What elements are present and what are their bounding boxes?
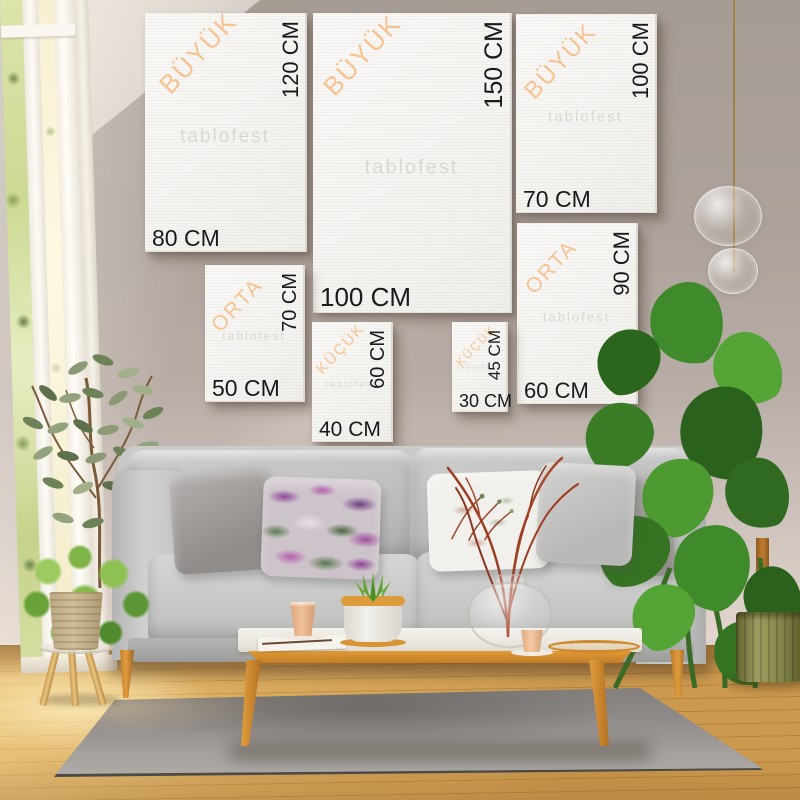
- watermark: tablofest: [222, 329, 285, 343]
- stool-leg: [68, 650, 79, 706]
- height-label: 45 CM: [485, 330, 505, 380]
- stool-leg: [84, 650, 106, 706]
- size-category-label: KÜÇÜK: [313, 320, 368, 377]
- height-label: 150 CM: [480, 21, 509, 109]
- watermark: tablofest: [548, 108, 623, 125]
- succulent-pot: [344, 602, 402, 642]
- coffee-table-apron: [248, 651, 632, 663]
- height-label: 60 CM: [367, 330, 390, 389]
- width-label: 80 CM: [152, 225, 220, 252]
- pillow-purple-leaf-pattern: [260, 476, 381, 580]
- size-category-label: BÜYÜK: [153, 6, 244, 100]
- canvas-30x45: KÜÇÜK tablofest 45 CM 30 CM: [452, 322, 508, 412]
- watermark: tablofest: [365, 157, 459, 180]
- canvas-70x100: BÜYÜK tablofest 100 CM 70 CM: [516, 14, 657, 213]
- size-category-label: BÜYÜK: [317, 8, 408, 102]
- width-label: 100 CM: [320, 282, 411, 313]
- height-label: 120 CM: [278, 21, 304, 98]
- plant-basket-pot: [47, 592, 105, 650]
- canvas-100x150: BÜYÜK tablofest 150 CM 100 CM: [313, 13, 512, 313]
- size-guide-scene: BÜYÜK tablofest 120 CM 80 CM BÜYÜK tablo…: [0, 0, 800, 800]
- wooden-tray: [548, 640, 640, 653]
- stool-leg: [39, 650, 59, 706]
- monstera-pot: [736, 612, 800, 682]
- size-category-label: ORTA: [521, 236, 582, 299]
- plant-stool: [38, 642, 114, 708]
- width-label: 50 CM: [212, 375, 280, 402]
- height-label: 70 CM: [279, 273, 302, 332]
- canvas-40x60: KÜÇÜK tablofest 60 CM 40 CM: [312, 322, 393, 442]
- canvas-80x120: BÜYÜK tablofest 120 CM 80 CM: [145, 13, 307, 252]
- table-shadow: [230, 742, 650, 760]
- width-label: 70 CM: [523, 186, 591, 213]
- height-label: 100 CM: [628, 22, 654, 99]
- width-label: 40 CM: [319, 418, 381, 442]
- pendant-lamp-glass-globe: [694, 186, 762, 246]
- succulent-plant: [350, 572, 396, 602]
- watermark: tablofest: [180, 126, 270, 148]
- window-glazing-bar: [1, 23, 75, 37]
- pillow-gray: [168, 465, 275, 576]
- canvas-50x70: ORTA tablofest 70 CM 50 CM: [205, 265, 305, 402]
- size-category-label: BÜYÜK: [519, 18, 603, 105]
